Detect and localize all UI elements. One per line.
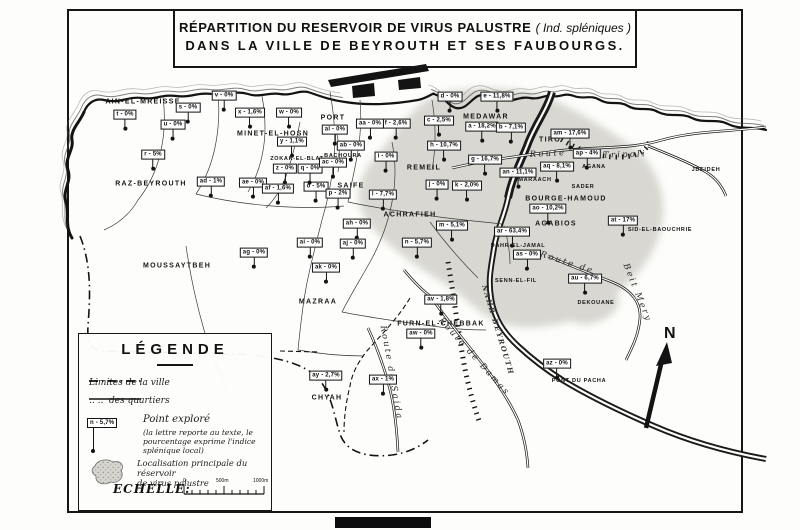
point-label-box: h - 10,7% [427, 141, 461, 151]
point-dot [495, 109, 499, 113]
point-label-box: e - 11,8% [480, 92, 513, 102]
point-dot [525, 267, 529, 271]
point-label-box: af - 1,6% [262, 184, 294, 194]
point-dot [555, 179, 559, 183]
survey-point-ax: ax - 1% [369, 375, 397, 396]
point-dot [435, 197, 439, 201]
survey-point-af: af - 1,6% [262, 184, 294, 205]
sample-point-stem [93, 428, 94, 450]
point-dot [555, 376, 559, 380]
point-dot [331, 175, 335, 179]
point-dot [516, 185, 520, 189]
legend-item-city-limits: Limites de la ville [89, 378, 170, 388]
point-label-box: i - 0% [375, 152, 398, 162]
legend-item-quarter-limits: .. .. des quartiers [89, 396, 170, 406]
district-label: PORT [321, 115, 346, 122]
point-dot [314, 199, 318, 203]
survey-point-ah: ah - 0% [343, 219, 371, 240]
point-label-box: au - 6,7% [568, 274, 602, 284]
point-dot [252, 265, 256, 269]
road-label: Route [530, 148, 567, 160]
point-dot [384, 169, 388, 173]
point-label-box: k - 2,0% [452, 181, 482, 191]
point-dot [123, 127, 127, 131]
survey-point-t: t - 0% [113, 110, 136, 131]
point-label-box: x - 1,6% [235, 108, 265, 118]
survey-point-at: at - 17% [608, 216, 638, 237]
survey-point-av: av - 1,8% [424, 295, 457, 316]
point-label-box: ah - 0% [343, 219, 371, 229]
survey-point-f: f - 2,6% [382, 119, 411, 140]
survey-point-au: au - 6,7% [568, 274, 602, 295]
point-dot [465, 198, 469, 202]
point-label-box: w - 0% [276, 108, 302, 118]
point-dot [381, 207, 385, 211]
scan-artifact-bar [335, 517, 431, 528]
survey-point-as: as - 0% [513, 250, 541, 271]
survey-point-w: w - 0% [276, 108, 302, 129]
point-label-box: p - 2% [326, 189, 351, 199]
survey-point-b: b - 7,1% [496, 123, 526, 144]
map-document: RÉPARTITION DU RESERVOIR DE VIRUS PALUST… [0, 0, 800, 530]
survey-point-ao: ao - 10,2% [529, 204, 566, 225]
survey-point-aj: aj - 0% [340, 239, 366, 260]
survey-point-ag: ag - 0% [240, 248, 268, 269]
point-dot [324, 388, 328, 392]
survey-point-l: l - 7,7% [369, 190, 397, 211]
point-label-box: g - 16,7% [468, 155, 502, 165]
point-dot [621, 233, 625, 237]
survey-point-k: k - 2,0% [452, 181, 482, 202]
solid-line-icon [89, 396, 141, 402]
survey-point-v: v - 0% [212, 91, 237, 112]
north-arrow [646, 342, 672, 428]
survey-point-ai: ai - 0% [297, 238, 323, 259]
point-dot [450, 238, 454, 242]
point-dot [439, 312, 443, 316]
point-dot [222, 108, 226, 112]
point-dot [349, 158, 353, 162]
survey-point-az: az - 0% [543, 359, 571, 380]
point-dot [480, 139, 484, 143]
point-dot [186, 120, 190, 124]
survey-point-aq: aq - 8,1% [540, 162, 574, 183]
survey-point-i: i - 0% [375, 152, 398, 173]
survey-point-e: e - 11,8% [480, 92, 513, 113]
survey-point-x: x - 1,6% [235, 108, 265, 129]
point-dot [509, 140, 513, 144]
sample-point-box: n - 5,7% [87, 418, 117, 428]
point-label-box: ar - 63,4% [494, 227, 530, 237]
title-parenthetical: ( Ind. spléniques ) [536, 21, 631, 35]
port-piers [328, 64, 429, 98]
survey-point-r: r - 5% [141, 150, 165, 171]
point-label-box: aw - 0% [406, 329, 435, 339]
point-label-box: u - 0% [161, 120, 186, 130]
survey-point-n: n - 5,7% [402, 238, 432, 259]
point-label-box: an - 11,1% [499, 168, 536, 178]
point-dot [381, 392, 385, 396]
title-box: RÉPARTITION DU RESERVOIR DE VIRUS PALUST… [173, 11, 637, 68]
point-dot [287, 125, 291, 129]
point-dot [583, 291, 587, 295]
point-label-box: n - 5,7% [402, 238, 432, 248]
district-label: MOUSSAYTBEH [143, 263, 211, 270]
survey-point-p: p - 2% [326, 189, 351, 210]
survey-point-c: c - 2,5% [424, 116, 454, 137]
point-dot [419, 346, 423, 350]
district-label: MAZRAA [299, 299, 337, 306]
point-label-box: c - 2,5% [424, 116, 454, 126]
survey-point-am: am - 17,6% [550, 129, 589, 150]
point-label-box: y - 1,1% [277, 137, 307, 147]
legend-item-point-explored: Point exploré [143, 414, 210, 425]
point-label-box: ai - 0% [297, 238, 323, 248]
survey-point-u: u - 0% [161, 120, 186, 141]
point-dot [151, 167, 155, 171]
point-label-box: j - 0% [426, 180, 449, 190]
point-label-box: al - 0% [322, 125, 348, 135]
survey-point-ad: ad - 1% [197, 177, 225, 198]
point-dot [308, 181, 312, 185]
point-dot [251, 195, 255, 199]
point-dot [368, 136, 372, 140]
survey-point-j: j - 0% [426, 180, 449, 201]
district-label: SENN-EL-FIL [495, 278, 537, 284]
dash-dot-line-icon [89, 378, 141, 384]
point-dot [394, 136, 398, 140]
point-label-box: d - 0% [438, 92, 463, 102]
point-dot [290, 154, 294, 158]
point-dot [351, 256, 355, 260]
point-label-box: ak - 0% [312, 263, 340, 273]
point-label-box: ao - 10,2% [529, 204, 566, 214]
point-label-box: aa - 0% [356, 119, 384, 129]
legend-point-note: (la lettre reporte au texte, le pourcent… [143, 428, 271, 455]
scale-bar-ruler [183, 484, 267, 498]
survey-point-y: y - 1,1% [277, 137, 307, 158]
point-dot [546, 221, 550, 225]
point-label-box: b - 7,1% [496, 123, 526, 133]
survey-point-aw: aw - 0% [406, 329, 435, 350]
legend-title: LÉGENDE [79, 341, 271, 358]
district-label: CHYAH [312, 395, 343, 402]
point-dot [248, 125, 252, 129]
district-label: ACHRAFIEH [384, 212, 437, 219]
point-dot [442, 158, 446, 162]
point-label-box: az - 0% [543, 359, 571, 369]
district-label: DEKOUANE [577, 300, 614, 306]
district-label: MEDAWAR [463, 114, 509, 121]
point-label-box: a - 18,2% [465, 122, 498, 132]
point-label-box: t - 0% [113, 110, 136, 120]
survey-point-aa: aa - 0% [356, 119, 384, 140]
point-dot [308, 255, 312, 259]
point-dot [171, 137, 175, 141]
point-dot [510, 244, 514, 248]
district-label: BOURGE-HAMOUD [525, 196, 606, 203]
point-label-box: s - 0% [176, 103, 201, 113]
point-label-box: f - 2,6% [382, 119, 411, 129]
survey-point-an: an - 11,1% [499, 168, 536, 189]
district-label: SADER [572, 184, 595, 190]
survey-point-ay: ay - 2,7% [309, 371, 342, 392]
point-label-box: ac - 0% [319, 158, 347, 168]
point-dot [324, 280, 328, 284]
point-label-box: m - 5,1% [436, 221, 468, 231]
point-label-box: at - 17% [608, 216, 638, 226]
map-title-line1: RÉPARTITION DU RESERVOIR DE VIRUS PALUST… [175, 20, 635, 35]
point-label-box: ap - 4% [573, 149, 601, 159]
point-label-box: aq - 8,1% [540, 162, 574, 172]
point-dot [276, 201, 280, 205]
point-dot [448, 109, 452, 113]
point-dot [585, 166, 589, 170]
legend-title-rule [157, 364, 193, 366]
point-label-box: am - 17,6% [550, 129, 589, 139]
point-dot [568, 146, 572, 150]
map-title-line2: DANS LA VILLE DE BEYROUTH ET SES FAUBOUR… [175, 38, 635, 53]
point-dot [415, 255, 419, 259]
legend-scale-title: ECHELLE: [113, 482, 191, 496]
point-label-box: r - 5% [141, 150, 165, 160]
survey-point-ar: ar - 63,4% [494, 227, 530, 248]
survey-point-ap: ap - 4% [573, 149, 601, 170]
sample-point-dot [91, 449, 95, 453]
point-dot [483, 172, 487, 176]
survey-point-m: m - 5,1% [436, 221, 468, 242]
district-label: REMEIL [407, 165, 441, 172]
legend-box: LÉGENDE Limites de la ville .. .. des qu… [78, 333, 272, 511]
point-label-box: ay - 2,7% [309, 371, 342, 381]
point-dot [437, 133, 441, 137]
survey-point-al: al - 0% [322, 125, 348, 146]
point-label-box: v - 0% [212, 91, 237, 101]
point-label-box: as - 0% [513, 250, 541, 260]
survey-point-z: z - 0% [273, 164, 297, 185]
survey-point-ac: ac - 0% [319, 158, 347, 179]
district-label: JDEIDEH [692, 167, 721, 173]
north-label: N [664, 325, 676, 343]
survey-point-d: d - 0% [438, 92, 463, 113]
point-dot [333, 142, 337, 146]
point-label-box: aj - 0% [340, 239, 366, 249]
point-label-box: l - 7,7% [369, 190, 397, 200]
point-label-box: z - 0% [273, 164, 297, 174]
survey-point-ak: ak - 0% [312, 263, 340, 284]
district-label: AIN-EL-MREISSE [105, 99, 180, 106]
point-label-box: ag - 0% [240, 248, 268, 258]
point-label-box: ax - 1% [369, 375, 397, 385]
survey-point-g: g - 16,7% [468, 155, 502, 176]
point-label-box: ad - 1% [197, 177, 225, 187]
survey-point-h: h - 10,7% [427, 141, 461, 162]
point-label-box: av - 1,8% [424, 295, 457, 305]
point-dot [209, 194, 213, 198]
survey-point-a: a - 18,2% [465, 122, 498, 143]
point-dot [336, 206, 340, 210]
road-label: Tripoli [603, 149, 647, 161]
legend-sample-point: n - 5,7% [87, 418, 117, 453]
district-label: RAZ-BEYROUTH [115, 181, 187, 188]
